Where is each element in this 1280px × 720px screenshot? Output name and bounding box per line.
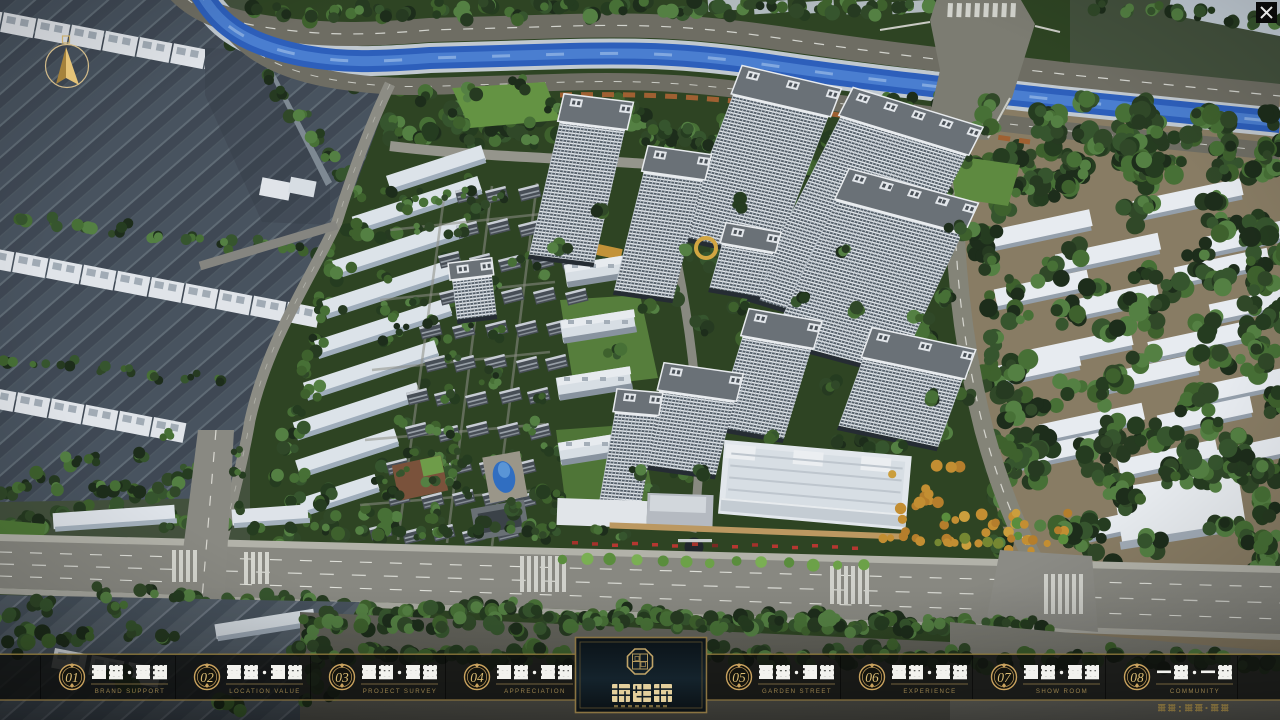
- svg-text:LOCATION VALUE: LOCATION VALUE: [229, 688, 301, 695]
- svg-text:BRAND SUPPORT: BRAND SUPPORT: [95, 688, 166, 695]
- svg-text:03: 03: [335, 670, 349, 685]
- svg-text:07: 07: [997, 670, 1012, 685]
- svg-text:01: 01: [65, 670, 79, 685]
- svg-text:EXPERIENCE: EXPERIENCE: [903, 688, 956, 695]
- svg-text:COMMUNITY: COMMUNITY: [1170, 688, 1220, 695]
- svg-text:APPRECIATION: APPRECIATION: [504, 688, 566, 695]
- svg-text:SHOW ROOM: SHOW ROOM: [1036, 688, 1088, 695]
- svg-text:06: 06: [865, 670, 879, 685]
- svg-text:02: 02: [200, 670, 214, 685]
- svg-text:PROJECT SURVEY: PROJECT SURVEY: [363, 688, 438, 695]
- svg-text:05: 05: [732, 670, 746, 685]
- svg-text:08: 08: [1130, 670, 1144, 685]
- svg-text:GARDEN STREET: GARDEN STREET: [762, 688, 832, 695]
- svg-text:04: 04: [470, 670, 484, 685]
